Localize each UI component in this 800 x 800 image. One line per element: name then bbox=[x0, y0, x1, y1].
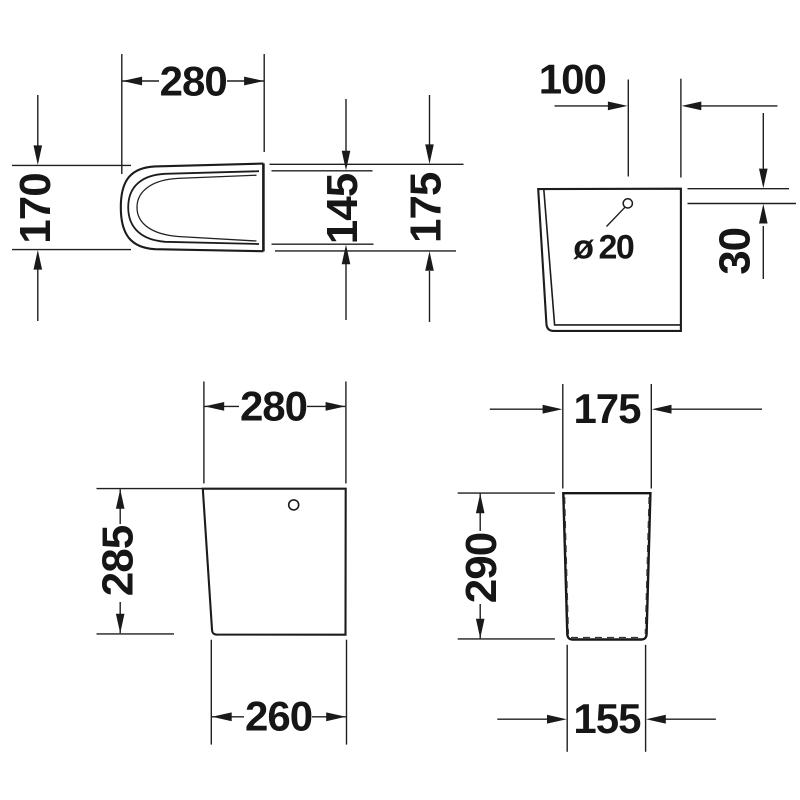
svg-text:ø 20: ø 20 bbox=[573, 229, 634, 267]
svg-text:155: 155 bbox=[573, 695, 641, 742]
svg-text:280: 280 bbox=[240, 382, 307, 429]
svg-text:170: 170 bbox=[11, 173, 60, 243]
svg-text:280: 280 bbox=[160, 58, 227, 105]
svg-text:145: 145 bbox=[318, 173, 367, 244]
svg-text:175: 175 bbox=[402, 172, 451, 243]
svg-text:175: 175 bbox=[573, 385, 641, 432]
svg-text:290: 290 bbox=[457, 533, 506, 603]
svg-text:30: 30 bbox=[711, 228, 760, 275]
svg-text:285: 285 bbox=[93, 525, 142, 596]
svg-text:100: 100 bbox=[539, 55, 606, 102]
svg-text:260: 260 bbox=[245, 693, 312, 740]
